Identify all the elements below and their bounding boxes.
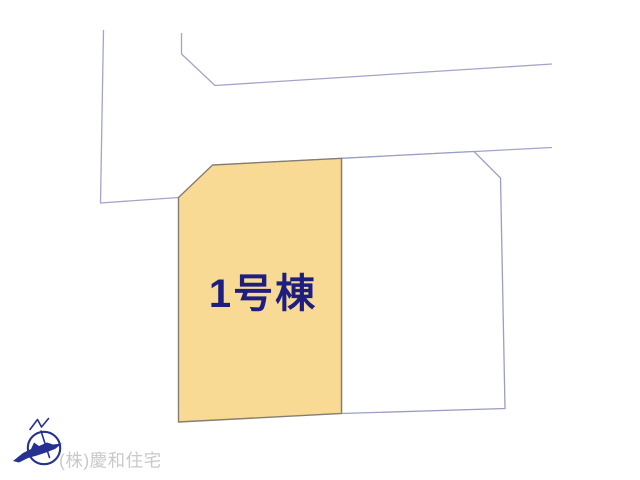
compass-north-icon: [13, 419, 62, 465]
company-watermark: (株)慶和住宅: [59, 451, 162, 471]
site-plan-drawing: 1号棟 (株)慶和住宅: [0, 0, 640, 480]
road-edge-top: [182, 33, 553, 86]
road-edge-left: [101, 30, 179, 203]
parcel-2-outline: [342, 152, 506, 414]
parcel-1-label: 1号棟: [209, 272, 317, 316]
site-plan-page: 1号棟 (株)慶和住宅: [0, 0, 640, 480]
compass-north-mark: [30, 419, 49, 430]
